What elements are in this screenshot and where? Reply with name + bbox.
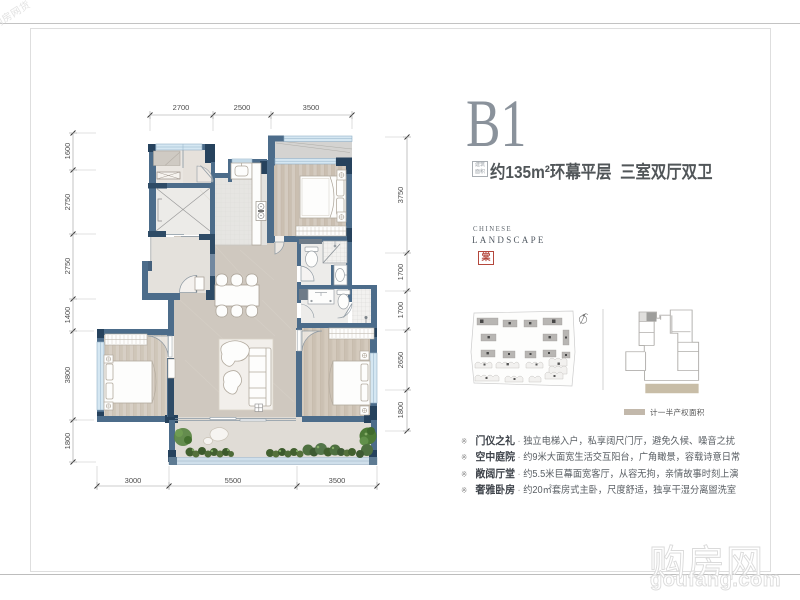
svg-text:3800: 3800 — [63, 367, 72, 384]
svg-text:3500: 3500 — [303, 103, 320, 112]
svg-text:3750: 3750 — [396, 187, 405, 204]
svg-text:1400: 1400 — [63, 307, 72, 324]
svg-text:1700: 1700 — [396, 302, 405, 319]
svg-text:3500: 3500 — [329, 476, 346, 485]
svg-text:2650: 2650 — [396, 352, 405, 369]
svg-text:1800: 1800 — [396, 402, 405, 419]
svg-text:2750: 2750 — [63, 194, 72, 211]
svg-text:2750: 2750 — [63, 258, 72, 275]
svg-text:2700: 2700 — [173, 103, 190, 112]
svg-text:3000: 3000 — [125, 476, 142, 485]
svg-text:1700: 1700 — [396, 264, 405, 281]
svg-text:2500: 2500 — [234, 103, 251, 112]
svg-text:5500: 5500 — [225, 476, 242, 485]
svg-text:1800: 1800 — [63, 433, 72, 450]
svg-text:1600: 1600 — [63, 143, 72, 160]
